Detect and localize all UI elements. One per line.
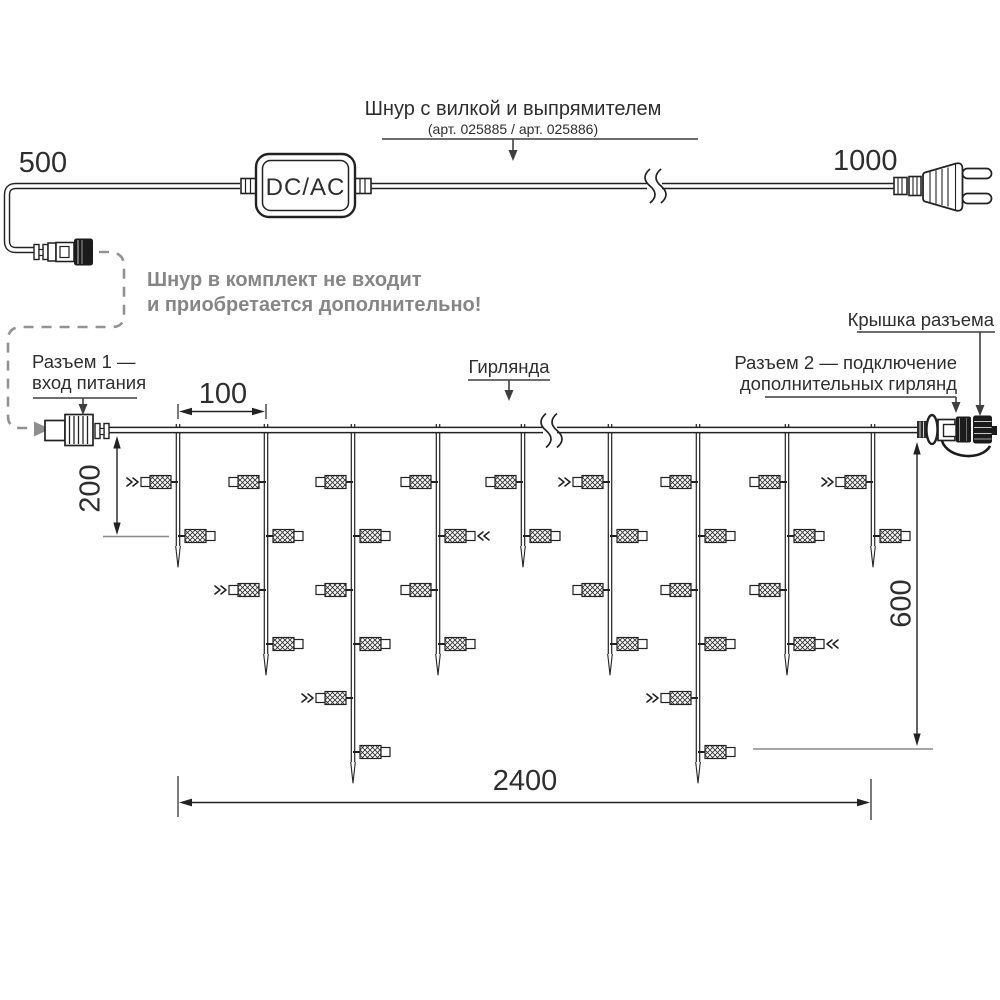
connector1-label: Разъем 1 — вход питания bbox=[32, 351, 146, 393]
lamp-body bbox=[845, 476, 866, 489]
lamp-body bbox=[360, 638, 381, 651]
lamp-body bbox=[670, 584, 691, 597]
connector2-label: Разъем 2 — подключение дополнительных ги… bbox=[657, 352, 957, 394]
lamp-body bbox=[325, 476, 346, 489]
connector2-label-line1: Разъем 2 — подключение bbox=[657, 352, 957, 373]
lamp-cap bbox=[316, 694, 325, 703]
lamp-body bbox=[445, 638, 466, 651]
lamp-cap bbox=[836, 478, 845, 487]
leader-garland bbox=[468, 380, 550, 401]
dashed-guide-path bbox=[8, 252, 124, 437]
lamp-cap bbox=[206, 532, 215, 541]
lamp-cap bbox=[294, 532, 303, 541]
dim-1000-label: 1000 bbox=[833, 145, 897, 178]
lamp-body bbox=[530, 530, 551, 543]
lamp-cap bbox=[229, 478, 238, 487]
cord-title: Шнур с вилкой и выпрямителем bbox=[363, 98, 663, 121]
lamp-cap bbox=[294, 640, 303, 649]
lamp-cap bbox=[466, 532, 475, 541]
lamp-cap bbox=[815, 532, 824, 541]
lamp-body bbox=[582, 476, 603, 489]
lamp-cap bbox=[401, 478, 410, 487]
connector-cap-icon bbox=[973, 416, 997, 444]
lamp-cap bbox=[316, 586, 325, 595]
flash-lamp-mark-icon bbox=[559, 478, 570, 486]
lamp-cap bbox=[466, 640, 475, 649]
connector1-icon bbox=[45, 415, 109, 446]
flash-lamp-mark-icon bbox=[215, 586, 226, 594]
flash-lamp-mark-icon bbox=[822, 478, 833, 486]
lamp-body bbox=[273, 638, 294, 651]
lamp-cap bbox=[551, 532, 560, 541]
cord-note: Шнур в комплект не входит и приобретаетс… bbox=[147, 268, 481, 318]
drop-tip bbox=[871, 546, 876, 567]
lamp-cap bbox=[726, 640, 735, 649]
cord-subtitle: (арт. 025885 / арт. 025886) bbox=[363, 121, 663, 138]
power-cord-cable bbox=[7, 169, 894, 250]
garland-wire bbox=[109, 414, 918, 448]
connector1-label-line1: Разъем 1 — bbox=[32, 351, 146, 372]
lamp-body bbox=[360, 746, 381, 759]
lamp-cap bbox=[726, 748, 735, 757]
flash-lamp-mark-icon bbox=[127, 478, 138, 486]
drop-tip bbox=[608, 654, 613, 675]
dim-600-label: 600 bbox=[886, 559, 919, 649]
lamp-cap bbox=[726, 532, 735, 541]
cord-note-line1: Шнур в комплект не входит bbox=[147, 268, 481, 293]
lamp-cap bbox=[750, 586, 759, 595]
lamp-body bbox=[185, 530, 206, 543]
lamp-body bbox=[705, 746, 726, 759]
lamp-body bbox=[670, 692, 691, 705]
lamp-cap bbox=[573, 586, 582, 595]
lamp-body bbox=[705, 530, 726, 543]
lamp-body bbox=[582, 584, 603, 597]
lamp-body bbox=[670, 476, 691, 489]
drop-tip bbox=[696, 762, 701, 783]
lamp-cap bbox=[638, 532, 647, 541]
dim-100-label: 100 bbox=[183, 378, 263, 411]
lamp-body bbox=[238, 584, 259, 597]
lamp-body bbox=[150, 476, 171, 489]
connector1-label-line2: вход питания bbox=[32, 372, 146, 393]
flash-lamp-mark-icon bbox=[647, 694, 658, 702]
lamp-body bbox=[238, 476, 259, 489]
drop-tip bbox=[264, 654, 269, 675]
lamp-cap bbox=[661, 586, 670, 595]
leader-connector1 bbox=[33, 398, 137, 415]
garland-label: Гирлянда bbox=[444, 356, 574, 377]
dim-500-label: 500 bbox=[18, 147, 68, 180]
lamp-body bbox=[794, 638, 815, 651]
flash-lamp-mark-icon bbox=[478, 532, 489, 540]
lamp-body bbox=[325, 692, 346, 705]
lamp-cap bbox=[815, 640, 824, 649]
lamp-body bbox=[759, 476, 780, 489]
lamp-cap bbox=[750, 478, 759, 487]
cord-note-line2: и приобретается дополнительно! bbox=[147, 293, 481, 318]
lamp-body bbox=[759, 584, 780, 597]
lamp-body bbox=[617, 638, 638, 651]
lamp-body bbox=[445, 530, 466, 543]
dcac-label: DC/AC bbox=[262, 174, 349, 202]
diagram-stage: Шнур с вилкой и выпрямителем (арт. 02588… bbox=[0, 0, 1000, 1000]
drop-tip bbox=[785, 654, 790, 675]
dim-2400-label: 2400 bbox=[450, 765, 600, 798]
lamp-cap bbox=[229, 586, 238, 595]
lamp-body bbox=[495, 476, 516, 489]
flash-lamp-mark-icon bbox=[827, 640, 838, 648]
lamp-cap bbox=[381, 748, 390, 757]
lamp-cap bbox=[401, 586, 410, 595]
cord-title-block: Шнур с вилкой и выпрямителем (арт. 02588… bbox=[363, 98, 663, 138]
lamp-cap bbox=[316, 478, 325, 487]
drop-tip bbox=[176, 546, 181, 567]
drop-tip bbox=[351, 762, 356, 783]
drop-tip bbox=[436, 654, 441, 675]
lamp-body bbox=[325, 584, 346, 597]
connector2-label-line2: дополнительных гирлянд bbox=[657, 373, 957, 394]
lamp-cap bbox=[381, 640, 390, 649]
power-plug-icon bbox=[894, 163, 992, 211]
lamp-cap bbox=[573, 478, 582, 487]
lamp-cap bbox=[381, 532, 390, 541]
lamp-cap bbox=[901, 532, 910, 541]
lamp-body bbox=[794, 530, 815, 543]
lamp-cap bbox=[141, 478, 150, 487]
lamp-body bbox=[705, 638, 726, 651]
lamp-cap bbox=[486, 478, 495, 487]
lamp-body bbox=[617, 530, 638, 543]
lamp-body bbox=[880, 530, 901, 543]
cord-end-connector-icon bbox=[34, 239, 93, 266]
lamp-cap bbox=[638, 640, 647, 649]
lamp-body bbox=[273, 530, 294, 543]
flash-lamp-mark-icon bbox=[302, 694, 313, 702]
dim-200-label: 200 bbox=[75, 444, 108, 534]
cap-label: Крышка разъема bbox=[694, 309, 994, 330]
lamp-body bbox=[360, 530, 381, 543]
leader-connector2 bbox=[765, 397, 961, 413]
lamp-body bbox=[410, 584, 431, 597]
garland-drops bbox=[127, 424, 910, 783]
leader-cord-label bbox=[382, 139, 698, 161]
lamp-body bbox=[410, 476, 431, 489]
drop-tip bbox=[521, 546, 526, 567]
lamp-cap bbox=[661, 478, 670, 487]
lamp-cap bbox=[661, 694, 670, 703]
